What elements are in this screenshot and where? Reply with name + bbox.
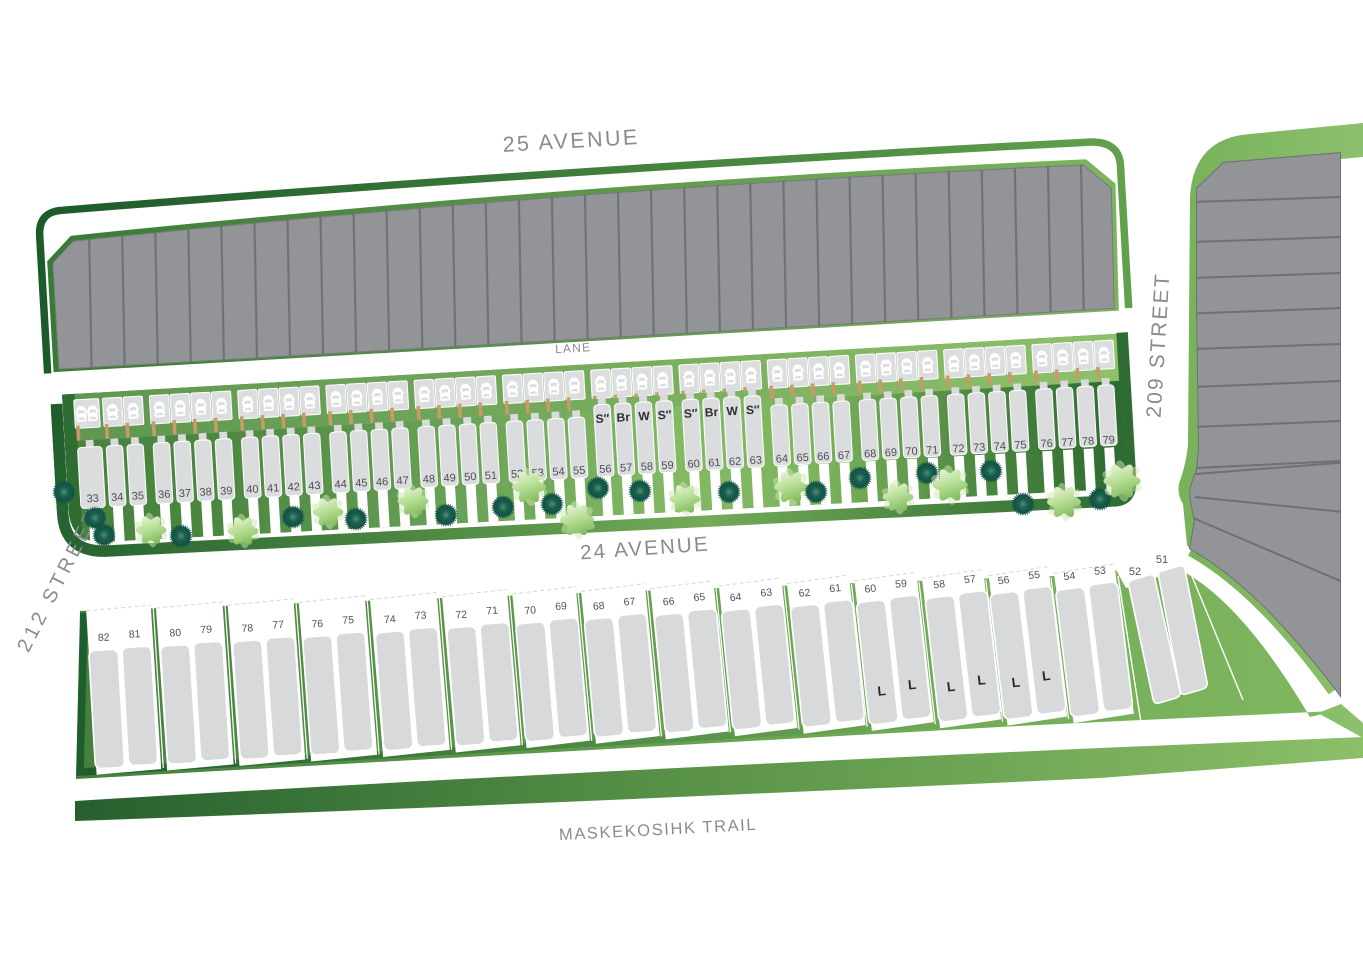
svg-text:40: 40 [246, 483, 259, 496]
svg-text:LANE: LANE [555, 340, 592, 356]
svg-text:44: 44 [334, 478, 347, 491]
svg-text:66: 66 [817, 451, 830, 464]
svg-text:67: 67 [623, 596, 636, 609]
svg-text:64: 64 [776, 453, 789, 466]
svg-text:L: L [907, 677, 917, 693]
svg-text:34: 34 [111, 491, 124, 504]
svg-text:52: 52 [1129, 566, 1141, 578]
svg-text:76: 76 [311, 618, 324, 631]
svg-text:59: 59 [661, 460, 674, 473]
svg-text:W: W [726, 404, 739, 419]
svg-text:64: 64 [729, 591, 742, 604]
svg-text:38: 38 [199, 486, 212, 499]
svg-text:51: 51 [485, 470, 498, 483]
svg-text:51: 51 [1156, 554, 1168, 566]
svg-text:71: 71 [486, 605, 499, 618]
svg-text:73: 73 [973, 442, 986, 455]
svg-text:35: 35 [132, 490, 145, 503]
svg-text:45: 45 [355, 477, 368, 490]
svg-text:76: 76 [1040, 438, 1053, 451]
svg-text:46: 46 [376, 476, 389, 489]
svg-text:L: L [877, 683, 887, 699]
svg-text:79: 79 [1102, 434, 1115, 447]
svg-text:62: 62 [798, 587, 811, 600]
svg-text:L: L [976, 672, 986, 688]
svg-text:68: 68 [864, 448, 877, 461]
svg-text:56: 56 [599, 463, 612, 476]
svg-text:72: 72 [952, 443, 965, 456]
svg-text:74: 74 [384, 613, 397, 626]
svg-text:36: 36 [158, 489, 171, 502]
svg-text:67: 67 [838, 449, 851, 462]
svg-text:78: 78 [1082, 435, 1095, 448]
svg-text:74: 74 [993, 440, 1006, 453]
svg-text:50: 50 [464, 471, 477, 484]
svg-text:66: 66 [662, 595, 675, 608]
svg-text:61: 61 [829, 582, 842, 595]
svg-text:63: 63 [760, 587, 773, 600]
svg-text:56: 56 [997, 574, 1010, 587]
svg-text:L: L [1041, 668, 1051, 684]
svg-text:72: 72 [455, 609, 468, 622]
svg-text:41: 41 [267, 482, 280, 495]
svg-text:58: 58 [933, 578, 946, 591]
svg-text:57: 57 [620, 462, 633, 475]
svg-text:69: 69 [555, 600, 568, 613]
svg-text:Br: Br [616, 410, 630, 425]
svg-text:48: 48 [423, 473, 436, 486]
svg-text:75: 75 [342, 614, 355, 627]
svg-text:S″: S″ [595, 411, 610, 426]
svg-text:37: 37 [179, 487, 192, 500]
svg-text:65: 65 [693, 591, 706, 604]
svg-text:60: 60 [687, 458, 700, 471]
svg-text:62: 62 [729, 456, 742, 469]
svg-text:43: 43 [308, 480, 321, 493]
svg-text:L: L [1011, 675, 1021, 691]
svg-text:Br: Br [704, 405, 718, 420]
svg-text:58: 58 [640, 461, 653, 474]
svg-text:77: 77 [1061, 436, 1074, 449]
svg-text:69: 69 [884, 447, 897, 460]
svg-text:70: 70 [905, 445, 918, 458]
svg-text:57: 57 [963, 573, 976, 586]
svg-text:68: 68 [592, 600, 605, 613]
svg-text:59: 59 [895, 578, 908, 591]
svg-text:71: 71 [926, 444, 939, 457]
svg-text:73: 73 [414, 609, 427, 622]
svg-text:77: 77 [272, 619, 285, 632]
svg-text:39: 39 [220, 485, 233, 498]
svg-text:78: 78 [241, 622, 254, 635]
svg-text:47: 47 [396, 475, 409, 488]
svg-text:55: 55 [573, 465, 586, 478]
svg-text:49: 49 [443, 472, 456, 485]
svg-text:53: 53 [1094, 565, 1107, 578]
svg-text:S″: S″ [746, 402, 761, 417]
svg-text:63: 63 [749, 454, 762, 467]
svg-text:W: W [638, 409, 651, 424]
svg-text:80: 80 [169, 627, 182, 640]
svg-text:81: 81 [128, 628, 141, 641]
svg-text:70: 70 [524, 604, 537, 617]
svg-text:60: 60 [864, 583, 877, 596]
svg-text:L: L [946, 679, 956, 695]
svg-text:S″: S″ [657, 408, 672, 423]
svg-text:65: 65 [796, 452, 809, 465]
svg-text:79: 79 [200, 624, 213, 637]
svg-text:S″: S″ [684, 406, 699, 421]
svg-text:33: 33 [86, 493, 99, 506]
svg-text:82: 82 [98, 632, 111, 645]
svg-text:54: 54 [1063, 570, 1076, 583]
svg-text:75: 75 [1014, 439, 1027, 452]
svg-text:42: 42 [287, 481, 300, 494]
svg-text:55: 55 [1028, 569, 1041, 582]
svg-text:54: 54 [552, 466, 565, 479]
svg-text:61: 61 [708, 457, 721, 470]
